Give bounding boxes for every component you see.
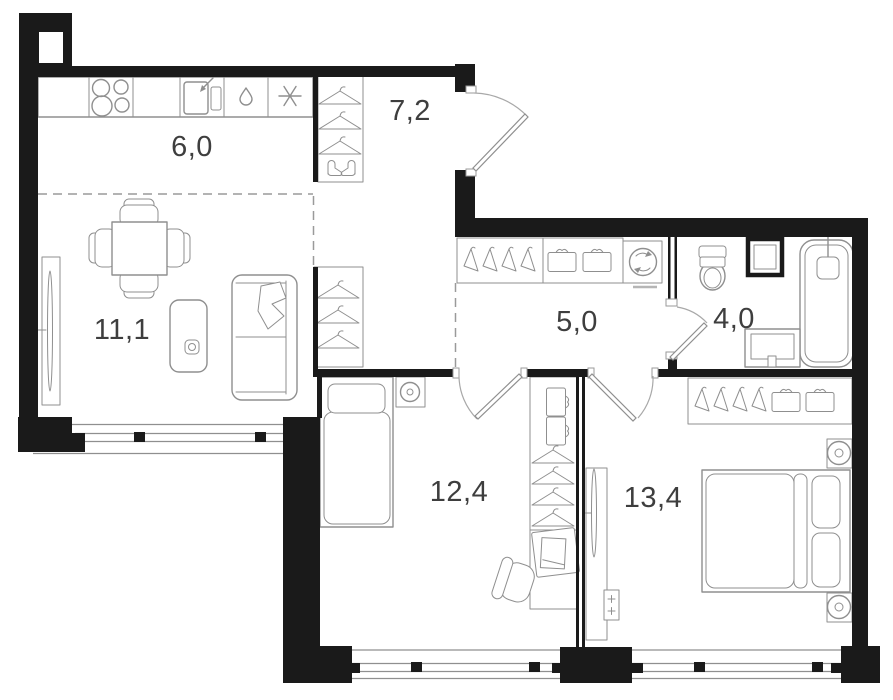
desk-icon [531, 527, 579, 577]
room-label-bathroom: 4,0 [713, 303, 755, 335]
hall-wardrobe-bottom [314, 267, 363, 367]
room-label-bedroom1: 12,4 [430, 476, 488, 508]
desk-chair-icon [490, 556, 538, 608]
entry-door-swing-icon [473, 93, 528, 171]
dining-set [89, 199, 190, 298]
room-label-kitchen: 6,0 [171, 131, 213, 163]
room-label-living: 11,1 [94, 314, 150, 346]
bedroom1-door-swing-icon [459, 374, 522, 419]
kitchen-counter [38, 77, 313, 117]
bedroom2-wardrobe [688, 378, 852, 424]
room-label-hallway: 7,2 [389, 95, 431, 127]
nightstand-lamp-icon [396, 377, 425, 407]
wall-corner-shaft [19, 13, 72, 68]
bedroom2-door-swing-icon [589, 374, 653, 421]
room-label-corridor: 5,0 [556, 306, 598, 338]
double-bed-icon [702, 470, 850, 592]
fridge-snowflake-icon [279, 87, 301, 106]
throw-blanket-icon [258, 282, 286, 329]
stove-burners-icon [92, 80, 129, 117]
washing-machine-icon [623, 241, 662, 287]
tv-icon [38, 257, 60, 405]
dishwasher-droplet-icon [240, 88, 252, 105]
dining-table-icon [112, 222, 167, 275]
radiator-icon [604, 590, 619, 620]
room-label-bedroom2: 13,4 [624, 482, 682, 514]
nightstand-lamp-icon [827, 593, 852, 622]
toilet-icon [699, 246, 726, 290]
shoes-icon [328, 161, 355, 176]
floor-plan: 6,0 7,2 11,1 5,0 4,0 12,4 13,4 [0, 0, 893, 700]
floor-unit-icon [170, 300, 207, 372]
ventilation-shaft-icon [748, 239, 782, 275]
bathtub-icon [800, 237, 853, 367]
bathroom-door-swing-icon [670, 307, 707, 360]
corridor-wardrobe [457, 238, 623, 283]
single-bed-icon [320, 377, 393, 527]
bedroom1-wardrobe [490, 377, 579, 609]
sofa-icon [232, 275, 297, 400]
nightstand-lamp-icon [827, 439, 852, 468]
hall-wardrobe-top [318, 75, 363, 182]
kitchen-sink-icon [184, 78, 221, 114]
